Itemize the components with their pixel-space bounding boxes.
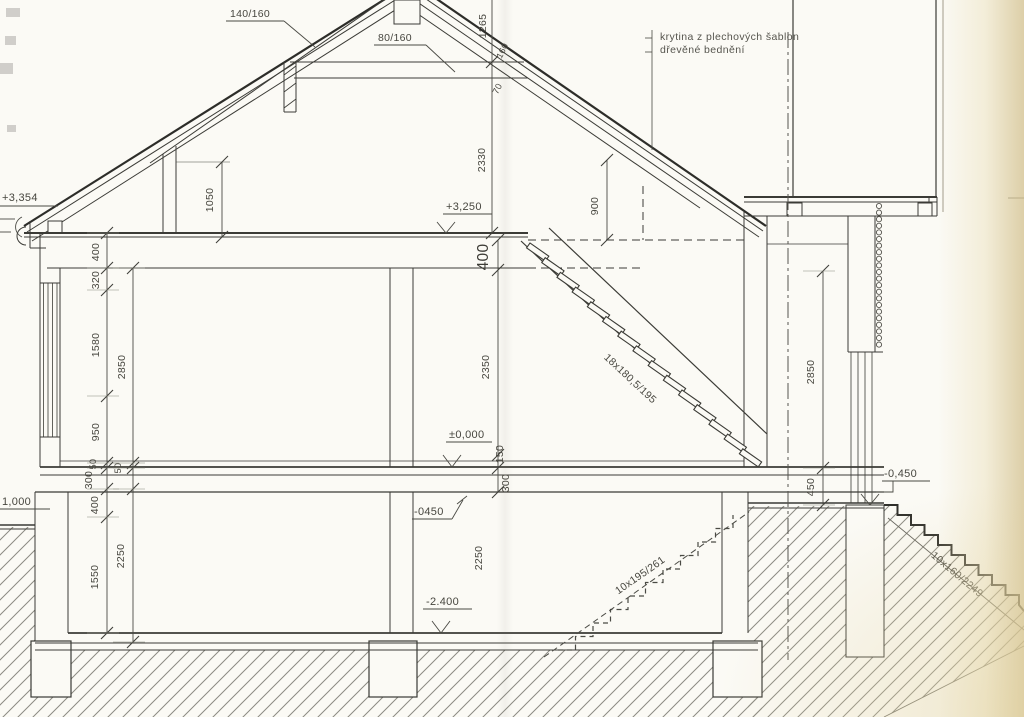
dim-mid-bsmt-2250: 2250 [473,546,485,571]
dim-attic-headroom: 900 [589,197,601,215]
dim-knee-wall: 1050 [204,188,216,213]
attic-knee-wall [163,146,176,233]
ridge-beam-section [394,0,420,24]
dim-mid-300: 300 [500,474,512,492]
dim-left-50b: 50 [113,463,123,474]
dim-left-320: 320 [90,271,102,289]
level-terrain-left: 1,000 [2,496,31,508]
roof-sheathing-note: dřevěné bednění [660,44,745,56]
upper-structure-outline [793,0,936,197]
centre-wall [390,268,413,633]
roof-layer-160: 160 [494,41,510,60]
section-drawing: 140/160 80/160 krytina z plechových šabl… [0,0,1024,717]
dim-right-total: 2850 [805,360,817,385]
dim-bsmt-total: 2250 [115,544,127,569]
dim-left-400: 400 [90,243,102,261]
level-slab-underside: -0450 [414,506,444,518]
level-ground-floor: ±0,000 [449,429,484,441]
level-attic-floor: +3,250 [446,201,482,213]
annex-flat-roof [744,197,937,216]
dim-bsmt-300: 300 [83,471,95,489]
blueprint-page: 140/160 80/160 krytina z plechových šabl… [0,0,1024,717]
dim-left-total: 2850 [116,355,128,380]
level-eave: +3,354 [2,192,38,204]
attic-floor-slab [24,186,744,268]
dim-right-450: 450 [805,478,817,496]
dim-bsmt-1550: 1550 [89,565,101,590]
annex-right-wall [767,216,883,503]
roof-layer-70: 70 [490,82,504,96]
collar-size-label: 80/160 [378,32,412,44]
collar-beam [284,62,528,112]
dim-mid-2350: 2350 [480,355,492,380]
level-basement-floor: -2.400 [426,596,459,608]
dim-attic-slab: 400 [475,244,492,271]
dim-bsmt-400: 400 [89,496,101,514]
rafter-size-label: 140/160 [230,8,270,20]
right-wall [744,212,767,467]
dim-roof-inner-height: 2330 [476,148,488,173]
dim-ridge-offset: 1265 [477,14,489,39]
dim-left-50a: 50 [88,459,98,470]
level-terrain-right: -0,450 [884,468,917,480]
dim-mid-150: 150 [494,445,506,463]
roof-covering-note: krytina z plechových šablon [660,31,799,43]
dim-left-950: 950 [90,423,102,441]
dim-left-1580: 1580 [90,333,102,358]
roof-left-slope [24,0,414,241]
attic-stair-stringers [521,228,767,452]
